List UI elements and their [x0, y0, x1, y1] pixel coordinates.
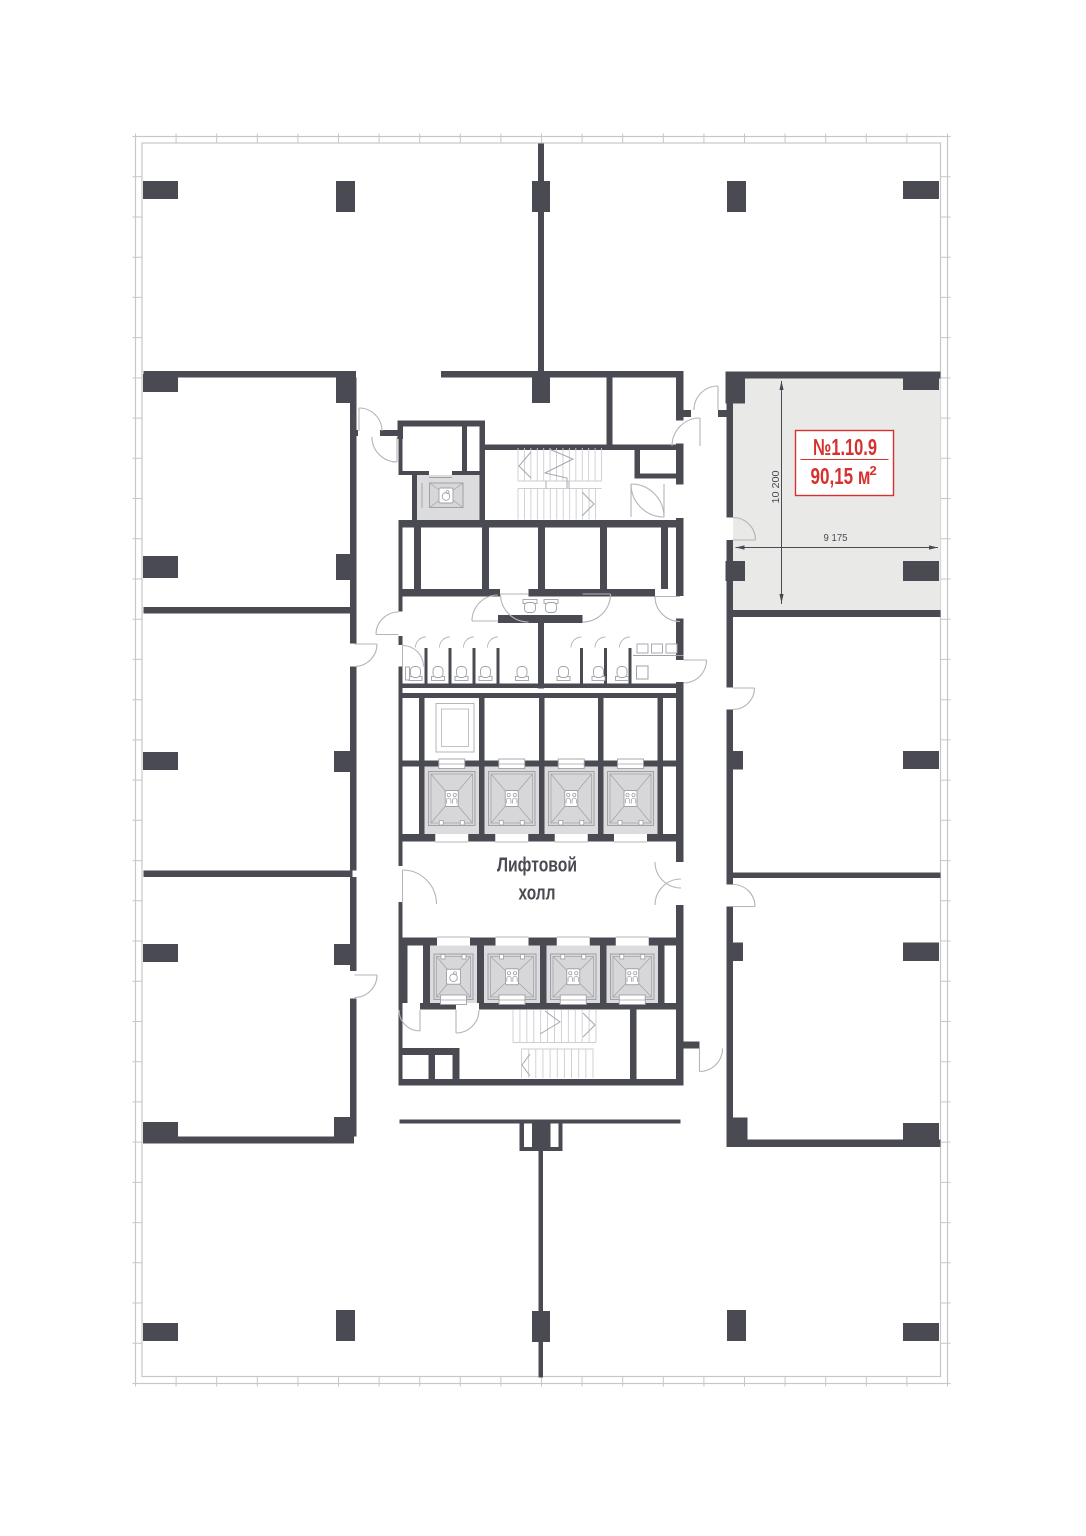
svg-text:холл: холл — [519, 883, 556, 905]
svg-text:Лифтовой: Лифтовой — [497, 855, 577, 877]
svg-text:90,15 м: 90,15 м — [811, 463, 871, 489]
svg-text:2: 2 — [870, 463, 877, 478]
svg-text:10 200: 10 200 — [770, 470, 782, 503]
svg-text:№1.10.9: №1.10.9 — [813, 434, 877, 460]
svg-text:9 175: 9 175 — [824, 532, 848, 544]
